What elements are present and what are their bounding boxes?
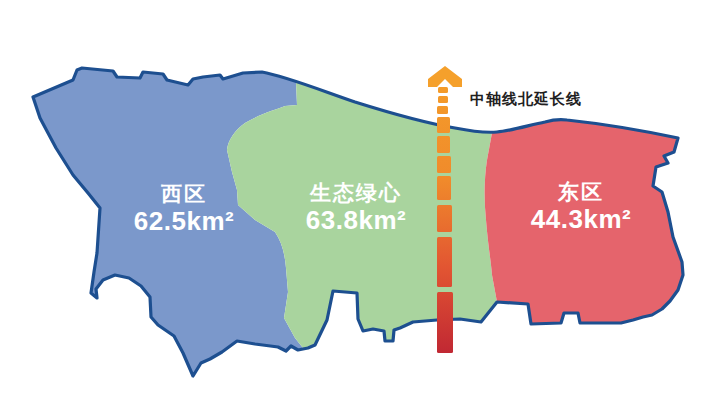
axis-dash: [437, 237, 452, 287]
axis-dash: [437, 292, 453, 353]
axis-dash: [437, 117, 450, 133]
axis-dash: [437, 156, 451, 173]
axis-dash: [437, 205, 452, 232]
east-district-shape: [485, 120, 683, 324]
planning-map-canvas: [0, 0, 718, 407]
axis-dash: [437, 106, 448, 114]
axis-dash: [438, 96, 448, 103]
axis-dash: [437, 136, 450, 153]
axis-dash: [437, 176, 451, 200]
axis-arrow-icon: [428, 66, 462, 87]
planning-map: 西区 62.5km² 生态绿心 63.8km² 东区 44.3km² 中轴线北延…: [0, 0, 718, 407]
axis-dash: [438, 87, 448, 93]
axis-label: 中轴线北延长线: [470, 90, 582, 109]
